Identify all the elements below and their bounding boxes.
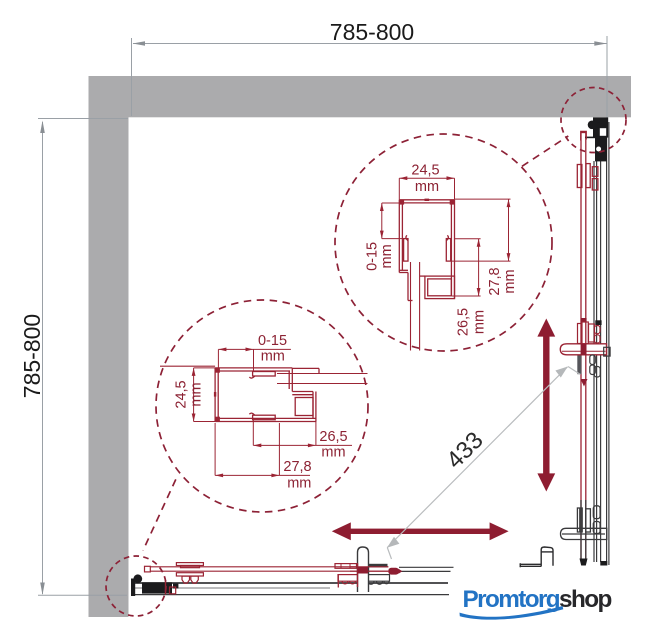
svg-text:27,8: 27,8 <box>487 267 503 295</box>
svg-text:mm: mm <box>321 445 345 461</box>
svg-text:0-15: 0-15 <box>258 333 287 349</box>
svg-text:mm: mm <box>287 476 311 492</box>
svg-text:mm: mm <box>415 179 439 195</box>
svg-text:785-800: 785-800 <box>330 19 414 45</box>
svg-text:mm: mm <box>379 244 395 268</box>
svg-text:Promtorgshop: Promtorgshop <box>463 586 612 613</box>
svg-text:785-800: 785-800 <box>19 314 45 398</box>
svg-text:27,8: 27,8 <box>283 459 311 475</box>
svg-text:mm: mm <box>472 310 488 334</box>
svg-text:mm: mm <box>261 349 285 365</box>
svg-text:26,5: 26,5 <box>319 429 347 445</box>
svg-text:mm: mm <box>189 382 205 406</box>
svg-text:24,5: 24,5 <box>411 163 439 179</box>
svg-text:26,5: 26,5 <box>456 308 472 336</box>
svg-text:24,5: 24,5 <box>174 380 190 408</box>
svg-text:mm: mm <box>502 269 518 293</box>
